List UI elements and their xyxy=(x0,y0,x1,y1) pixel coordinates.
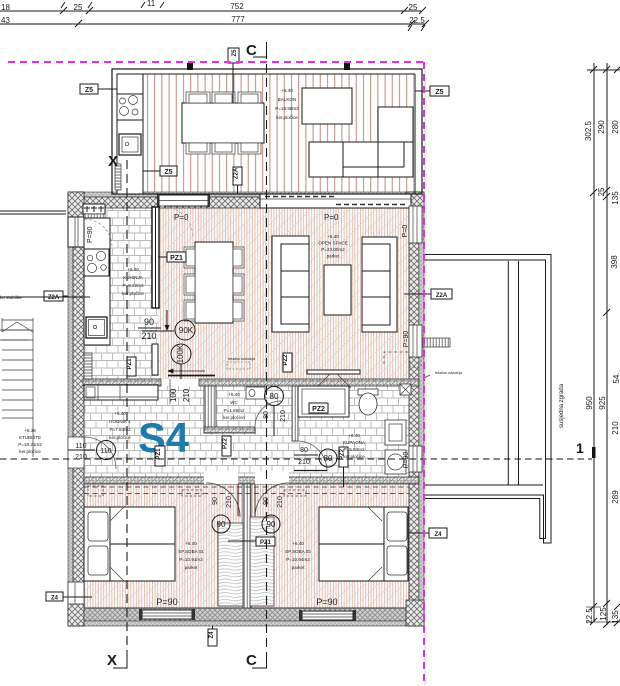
svg-text:290: 290 xyxy=(597,120,606,134)
svg-text:Z4: Z4 xyxy=(51,596,59,602)
svg-text:KUPAONA: KUPAONA xyxy=(343,440,366,445)
svg-text:110: 110 xyxy=(75,443,86,450)
svg-text:398: 398 xyxy=(610,255,619,269)
svg-text:P=5.03m2: P=5.03m2 xyxy=(343,447,365,452)
svg-text:PZ1: PZ1 xyxy=(156,448,162,460)
svg-text:210: 210 xyxy=(141,331,156,341)
svg-text:P=90: P=90 xyxy=(87,226,94,243)
svg-text:parket: parket xyxy=(327,254,340,259)
svg-text:22.5: 22.5 xyxy=(409,16,425,25)
svg-text:P=0: P=0 xyxy=(174,213,189,222)
svg-text:950: 950 xyxy=(585,396,594,410)
svg-text:210: 210 xyxy=(277,496,284,508)
svg-text:+6.40: +6.40 xyxy=(292,541,304,546)
svg-text:135: 135 xyxy=(611,610,620,624)
svg-text:+6.36: +6.36 xyxy=(24,428,36,433)
svg-text:80: 80 xyxy=(300,447,308,454)
svg-text:210: 210 xyxy=(611,421,620,435)
svg-text:1: 1 xyxy=(576,440,584,456)
svg-text:11: 11 xyxy=(147,0,156,8)
svg-text:PZ2: PZ2 xyxy=(312,406,325,413)
svg-text:P=90: P=90 xyxy=(403,331,410,348)
svg-text:BALKON: BALKON xyxy=(278,97,297,102)
svg-text:P=0: P=0 xyxy=(402,225,409,238)
svg-text:210: 210 xyxy=(226,496,233,508)
svg-text:PZ2: PZ2 xyxy=(223,437,229,449)
svg-text:PZ2: PZ2 xyxy=(283,354,289,366)
svg-text:fekalna odvodnja: fekalna odvodnja xyxy=(228,357,255,361)
svg-text:+6.40: +6.40 xyxy=(228,392,240,397)
svg-text:P=8.22m2: P=8.22m2 xyxy=(122,283,144,288)
svg-text:fekalna odvodnja: fekalna odvodnja xyxy=(435,371,462,375)
svg-text:+6.40: +6.40 xyxy=(127,267,139,272)
svg-text:Z5: Z5 xyxy=(164,169,172,176)
svg-text:43: 43 xyxy=(1,16,10,25)
svg-text:925: 925 xyxy=(598,396,607,410)
svg-text:777: 777 xyxy=(231,15,245,24)
svg-text:WC: WC xyxy=(230,400,238,405)
svg-text:90: 90 xyxy=(144,317,154,327)
svg-text:susjedna zgrada: susjedna zgrada xyxy=(559,383,565,428)
svg-text:280: 280 xyxy=(611,120,620,134)
svg-text:C: C xyxy=(246,652,257,669)
svg-text:PZ1: PZ1 xyxy=(170,255,183,262)
svg-text:P=0: P=0 xyxy=(324,213,339,222)
svg-text:X: X xyxy=(108,153,118,170)
svg-text:ker.pločice: ker.pločice xyxy=(109,435,131,440)
svg-text:90: 90 xyxy=(267,520,276,529)
svg-text:P=1.65m2: P=1.65m2 xyxy=(223,408,245,413)
svg-text:X: X xyxy=(107,652,117,669)
svg-text:parket: parket xyxy=(292,565,305,570)
svg-text:Z2A: Z2A xyxy=(234,167,240,179)
svg-text:752: 752 xyxy=(230,2,244,11)
svg-text:Z4: Z4 xyxy=(434,532,442,538)
svg-text:18: 18 xyxy=(1,3,10,12)
svg-text:90: 90 xyxy=(217,520,226,529)
svg-text:Z2A: Z2A xyxy=(436,293,448,299)
svg-text:P=18.58m2: P=18.58m2 xyxy=(275,106,299,111)
svg-text:125: 125 xyxy=(599,607,608,621)
svg-text:PZ1: PZ1 xyxy=(127,358,133,370)
svg-text:ker.pločice: ker.pločice xyxy=(19,449,41,454)
svg-text:210: 210 xyxy=(75,454,87,461)
svg-text:+6.40: +6.40 xyxy=(348,433,360,438)
svg-text:210: 210 xyxy=(182,388,191,402)
svg-text:Z4: Z4 xyxy=(209,631,215,639)
svg-text:STUBIŠTE: STUBIŠTE xyxy=(19,434,41,440)
svg-text:25: 25 xyxy=(74,3,83,12)
svg-text:ker.pločice: ker.pločice xyxy=(223,415,245,420)
svg-text:Z2A: Z2A xyxy=(48,295,60,301)
svg-text:OPEN SPACE: OPEN SPACE xyxy=(318,241,348,246)
svg-text:Z5: Z5 xyxy=(435,89,443,96)
svg-text:+6.40: +6.40 xyxy=(281,88,293,93)
svg-text:22.5: 22.5 xyxy=(585,608,594,624)
svg-text:Z5: Z5 xyxy=(85,87,93,94)
svg-text:P=7.84m2: P=7.84m2 xyxy=(109,427,131,432)
svg-text:P=90: P=90 xyxy=(316,597,337,607)
svg-text:25: 25 xyxy=(597,187,606,196)
svg-text:210: 210 xyxy=(280,410,287,422)
svg-text:P=23.00m2: P=23.00m2 xyxy=(321,247,345,252)
svg-text:100K: 100K xyxy=(176,344,185,363)
svg-text:+6.40: +6.40 xyxy=(185,541,197,546)
svg-text:C: C xyxy=(246,42,257,59)
svg-text:P=10.91m2: P=10.91m2 xyxy=(179,557,203,562)
svg-text:90K: 90K xyxy=(179,326,194,335)
svg-text:100: 100 xyxy=(169,388,178,402)
svg-text:Z5: Z5 xyxy=(232,49,238,57)
svg-text:54.: 54. xyxy=(612,372,620,383)
svg-text:289: 289 xyxy=(611,490,620,504)
svg-text:PZ1: PZ1 xyxy=(260,540,272,546)
svg-text:+6.40: +6.40 xyxy=(327,234,339,239)
svg-text:SP.SOBA 01: SP.SOBA 01 xyxy=(178,549,204,554)
svg-text:P=18.21m2: P=18.21m2 xyxy=(18,442,42,447)
svg-text:P=90: P=90 xyxy=(156,597,177,607)
svg-text:ker.pločice: ker.pločice xyxy=(276,115,298,120)
svg-text:110: 110 xyxy=(100,448,111,455)
svg-text:80: 80 xyxy=(270,392,279,401)
svg-text:+6.40: +6.40 xyxy=(114,411,126,416)
svg-text:25: 25 xyxy=(409,3,418,12)
svg-text:P=90: P=90 xyxy=(403,452,410,469)
svg-text:135: 135 xyxy=(611,191,620,205)
svg-text:90: 90 xyxy=(212,497,219,505)
svg-text:ker.pločice: ker.pločice xyxy=(122,291,144,296)
svg-text:SP.SOBA 02: SP.SOBA 02 xyxy=(285,549,311,554)
svg-text:KUHINJA: KUHINJA xyxy=(123,275,144,280)
svg-text:210: 210 xyxy=(298,459,310,466)
svg-text:ker.pločice: ker.pločice xyxy=(343,454,365,459)
svg-text:302.5: 302.5 xyxy=(584,120,593,141)
svg-text:parket: parket xyxy=(185,565,198,570)
svg-text:HODNIK 1: HODNIK 1 xyxy=(109,419,131,424)
svg-text:P=10.64m2: P=10.64m2 xyxy=(286,557,310,562)
